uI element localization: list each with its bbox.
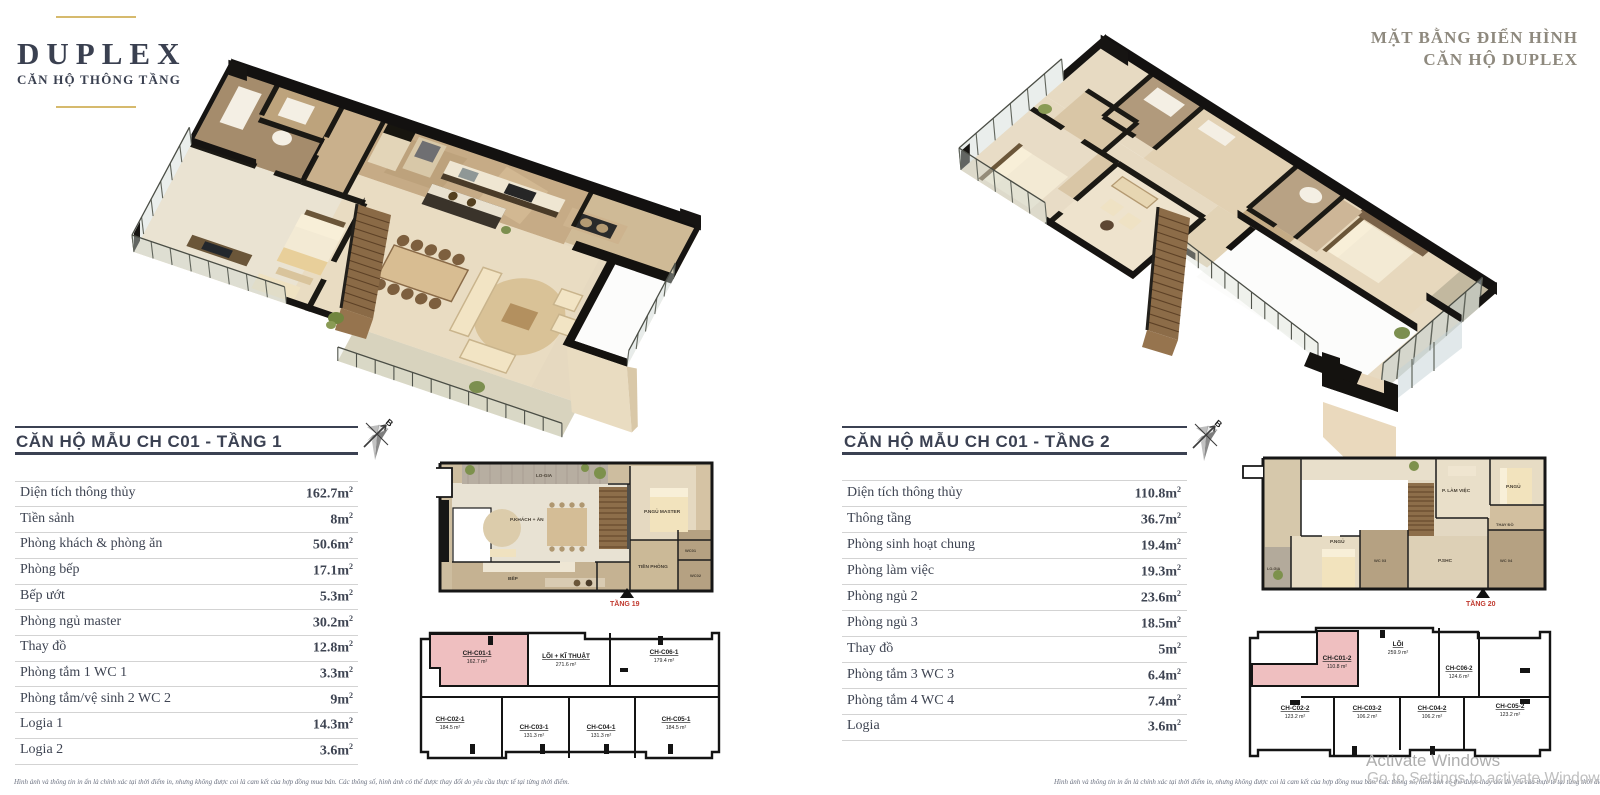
svg-text:184.5 m²: 184.5 m² (440, 725, 461, 731)
svg-text:THAY ĐỒ: THAY ĐỒ (1496, 522, 1514, 527)
svg-text:CH-C02-2: CH-C02-2 (1281, 705, 1310, 712)
svg-text:WC 03: WC 03 (1374, 558, 1387, 563)
svg-text:131.3 m²: 131.3 m² (524, 733, 545, 739)
svg-text:110.8 m²: 110.8 m² (1327, 664, 1347, 670)
svg-text:WC02: WC02 (690, 573, 702, 578)
svg-text:124.6 m²: 124.6 m² (1449, 674, 1470, 680)
svg-text:106.2 m²: 106.2 m² (1422, 714, 1443, 720)
svg-text:P.NGỦ: P.NGỦ (1506, 483, 1521, 490)
svg-text:106.2 m²: 106.2 m² (1357, 714, 1378, 720)
svg-text:LO-GIA: LO-GIA (1267, 567, 1281, 571)
svg-text:TẦNG 19: TẦNG 19 (610, 598, 640, 608)
svg-text:CH-C05-2: CH-C05-2 (1496, 703, 1525, 710)
svg-text:P.NGỦ MASTER: P.NGỦ MASTER (644, 508, 681, 515)
svg-text:P.KHÁCH + ĂN: P.KHÁCH + ĂN (510, 516, 544, 523)
svg-text:CH-C01-1: CH-C01-1 (463, 650, 492, 657)
svg-text:131.3 m²: 131.3 m² (591, 733, 612, 739)
svg-text:CH-C02-1: CH-C02-1 (436, 716, 465, 723)
svg-text:P.NGỦ: P.NGỦ (1330, 538, 1345, 545)
svg-text:123.2 m²: 123.2 m² (1500, 712, 1521, 718)
svg-text:LÕI: LÕI (1393, 639, 1404, 648)
svg-text:TẦNG 20: TẦNG 20 (1466, 598, 1496, 608)
svg-text:CH-C04-1: CH-C04-1 (587, 724, 616, 731)
svg-text:WC01: WC01 (685, 548, 697, 553)
svg-text:271.6 m²: 271.6 m² (556, 662, 577, 668)
svg-text:CH-C04-2: CH-C04-2 (1418, 705, 1447, 712)
svg-text:259.9 m²: 259.9 m² (1388, 650, 1409, 656)
svg-text:184.5 m²: 184.5 m² (666, 725, 687, 731)
svg-text:123.2 m²: 123.2 m² (1285, 714, 1306, 720)
svg-text:CH-C03-2: CH-C03-2 (1353, 705, 1382, 712)
svg-text:LO-GIA: LO-GIA (536, 473, 553, 478)
svg-text:179.4 m²: 179.4 m² (654, 658, 675, 664)
svg-text:CH-C06-2: CH-C06-2 (1445, 666, 1473, 672)
svg-text:CH-C01-2: CH-C01-2 (1323, 655, 1352, 662)
svg-text:WC 04: WC 04 (1500, 558, 1513, 563)
svg-text:CH-C05-1: CH-C05-1 (662, 716, 691, 723)
svg-text:P.SHC: P.SHC (1438, 558, 1453, 564)
svg-text:CH-C03-1: CH-C03-1 (520, 724, 549, 731)
svg-text:LÕI + KĨ THUẬT: LÕI + KĨ THUẬT (542, 651, 590, 660)
svg-text:162.7 m²: 162.7 m² (467, 659, 488, 665)
svg-text:CH-C06-1: CH-C06-1 (650, 649, 679, 656)
svg-text:BẾP: BẾP (508, 575, 519, 582)
